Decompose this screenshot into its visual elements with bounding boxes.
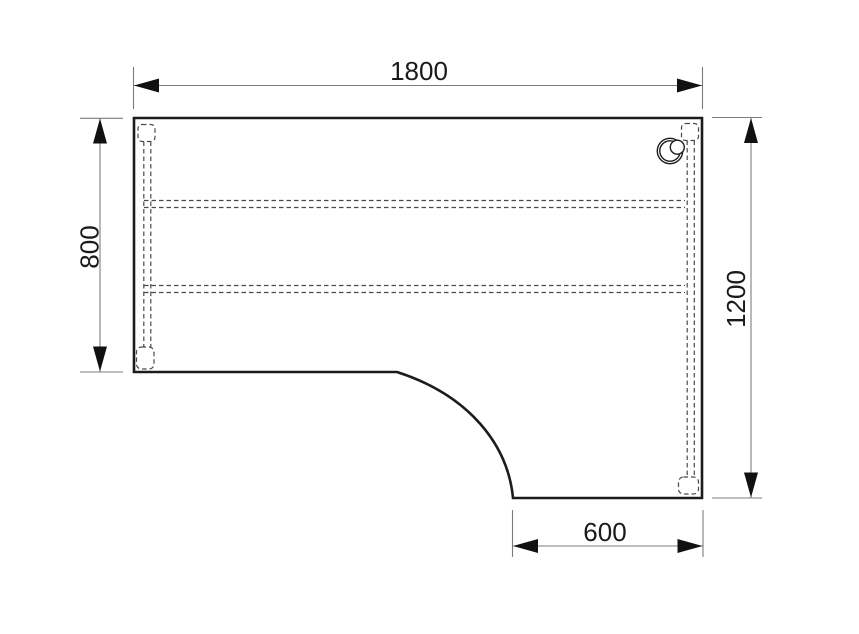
dimension-return-width: 600 [513, 510, 704, 557]
arrowhead-right [678, 539, 703, 553]
desktop-outline [134, 118, 702, 498]
arrowhead-left [134, 79, 159, 93]
arrowhead-down [93, 347, 107, 372]
desk-technical-drawing: 1800 800 1200 600 [0, 0, 859, 634]
desk-outline-group [134, 118, 702, 498]
arrowhead-up [744, 118, 758, 143]
dimension-left-depth: 800 [74, 118, 123, 372]
dimension-label-left-depth: 800 [74, 225, 104, 268]
arrowhead-up [93, 119, 107, 144]
grommet-cable-opening [670, 140, 684, 154]
arrowhead-down [744, 473, 758, 498]
dimension-label-right-depth: 1200 [721, 270, 751, 328]
drawing-canvas: 1800 800 1200 600 [0, 0, 859, 634]
dimension-top-width: 1800 [134, 56, 703, 109]
dimension-right-depth: 1200 [712, 118, 762, 499]
arrowhead-right [677, 79, 702, 93]
arrowhead-left [513, 539, 538, 553]
dimension-label-top-width: 1800 [390, 56, 448, 86]
dimension-label-return-width: 600 [583, 517, 626, 547]
